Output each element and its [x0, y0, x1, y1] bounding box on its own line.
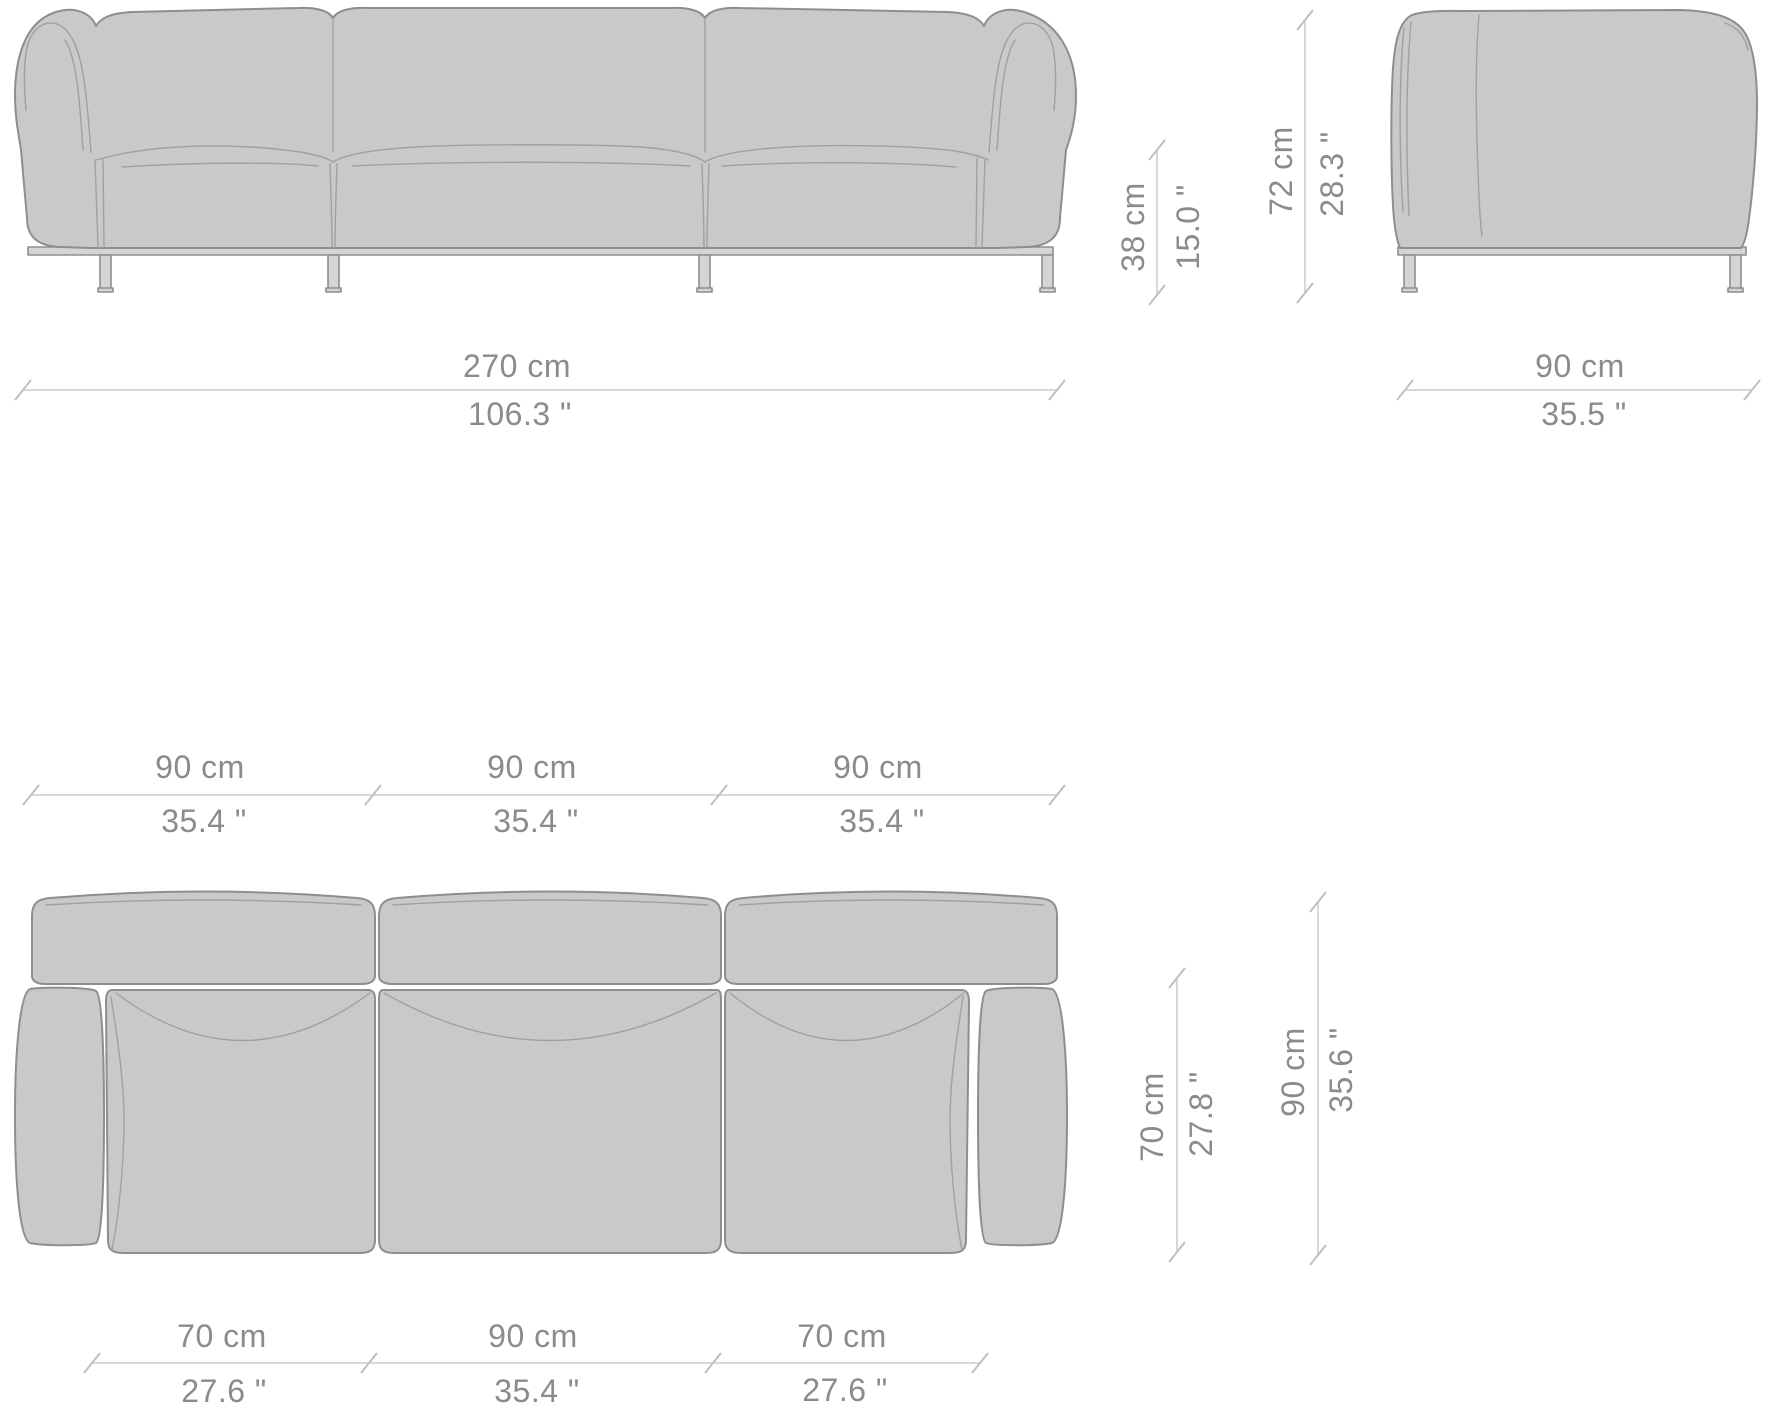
dim-seat-height-cm-label: 38 cm	[1117, 182, 1149, 272]
dim-overall-depth-cm-label: 90 cm	[1277, 1027, 1309, 1117]
top-left-armrest	[15, 988, 104, 1246]
dim-seat-left-inch-label: 27.6 "	[181, 1375, 267, 1407]
dim-module3-cm-label: 90 cm	[833, 751, 923, 783]
sofa-technical-drawing	[0, 0, 1767, 1418]
dim-module1-cm-label: 90 cm	[155, 751, 245, 783]
dim-seat-depth-cm-label: 70 cm	[1136, 1072, 1168, 1162]
dim-overall-width-cm-label: 270 cm	[463, 350, 571, 382]
dim-seat-center-cm-label: 90 cm	[488, 1320, 578, 1352]
dim-overall-height-inch-label: 28.3 "	[1316, 131, 1348, 217]
dim-module2-cm-label: 90 cm	[487, 751, 577, 783]
dim-overall-width-inch-label: 106.3 "	[468, 398, 572, 430]
top-view	[15, 892, 1067, 1254]
side-sofa-body	[1391, 10, 1757, 248]
dim-overall-height-cm-label: 72 cm	[1265, 126, 1297, 216]
dim-side-depth-cm-label: 90 cm	[1535, 350, 1625, 382]
front-legs	[98, 255, 1055, 292]
side-legs	[1402, 255, 1743, 292]
side-view	[1391, 10, 1757, 292]
top-seat-cushions	[106, 990, 969, 1253]
dim-seat-depth-inch-label: 27.8 "	[1185, 1071, 1217, 1157]
dim-module2-inch-label: 35.4 "	[493, 805, 579, 837]
top-right-armrest	[978, 988, 1067, 1246]
dim-seat-right-inch-label: 27.6 "	[802, 1374, 888, 1406]
dim-seat-right-cm-label: 70 cm	[797, 1320, 887, 1352]
top-back-cushions	[32, 892, 1057, 985]
dim-overall-depth-inch-label: 35.6 "	[1325, 1027, 1357, 1113]
dim-seat-left-cm-label: 70 cm	[177, 1320, 267, 1352]
front-view	[15, 8, 1076, 292]
dim-seat-height-inch-label: 15.0 "	[1172, 184, 1204, 270]
dim-module1-inch-label: 35.4 "	[161, 805, 247, 837]
dim-seat-center-inch-label: 35.4 "	[494, 1375, 580, 1407]
front-sofa-body	[15, 8, 1076, 248]
dimension-drawing-canvas: 270 cm 106.3 " 90 cm 35.5 " 38 cm 15.0 "…	[0, 0, 1767, 1418]
dim-module3-inch-label: 35.4 "	[839, 805, 925, 837]
dim-side-depth-inch-label: 35.5 "	[1541, 398, 1627, 430]
